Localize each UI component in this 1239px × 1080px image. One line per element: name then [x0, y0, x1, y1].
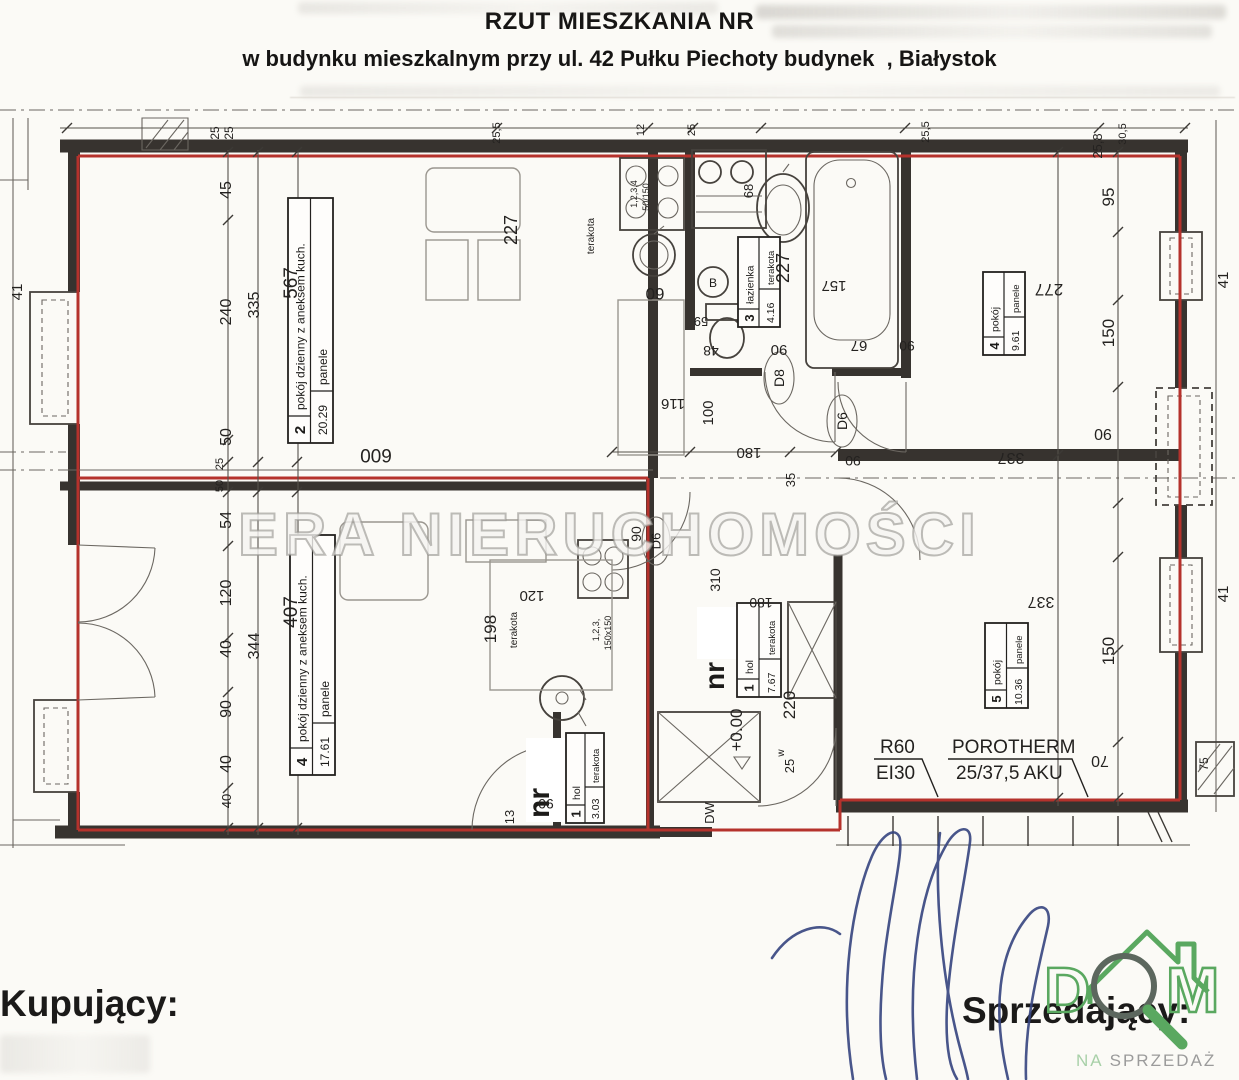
svg-text:terakota: terakota: [591, 748, 602, 783]
dimension-label: 30,5: [1117, 123, 1129, 144]
dimension-label: terakota: [509, 611, 520, 648]
scan-fold-line: [290, 97, 1235, 98]
dimension-label: 150: [1099, 637, 1118, 665]
dimension-label: 25,8: [1090, 133, 1105, 158]
dimension-label: 567: [281, 267, 302, 299]
svg-text:4.16: 4.16: [765, 302, 777, 323]
dimension-label: +0.00: [727, 708, 746, 751]
dimension-label: w: [776, 749, 787, 758]
room-table-living-2: 2 pokój dzienny z aneksem kuch. 20.29 pa…: [288, 198, 333, 443]
wall-annotation: R60 EI30 POROTHERM 25/37,5 AKU: [874, 737, 1088, 797]
svg-text:pokój: pokój: [992, 660, 1004, 685]
dimension-label: 100: [700, 400, 717, 425]
dimension-label: 240: [218, 299, 235, 326]
dimension-label: 41: [1215, 272, 1232, 289]
dimension-label: 1,2,3,4: [629, 180, 639, 208]
svg-text:łazienka: łazienka: [745, 265, 757, 304]
dimension-label: 157: [821, 277, 846, 294]
dimension-label: 25: [782, 759, 797, 773]
window-icon: [30, 292, 78, 424]
dimension-label: 25: [222, 126, 236, 140]
dimension-label: terakota: [586, 217, 597, 254]
svg-text:terakota: terakota: [767, 620, 778, 655]
dimension-label: 95: [1099, 188, 1118, 207]
scan-bleedthrough: [772, 25, 1212, 38]
dimension-label: 120: [519, 587, 544, 604]
svg-text:1: 1: [742, 684, 757, 691]
dimension-label: 310: [707, 568, 723, 592]
agency-watermark: ERA NIERUCHOMOŚCI: [238, 500, 981, 569]
dimension-label: 35: [783, 473, 798, 487]
dimension-label: 25,5: [920, 121, 932, 142]
bathtub-icon: [806, 152, 898, 368]
dimension-label: 116: [661, 395, 685, 412]
window-icon: [34, 700, 78, 792]
dimension-label: 50: [218, 428, 235, 446]
svg-text:1: 1: [569, 810, 584, 817]
dimension-label: 344: [246, 633, 263, 660]
dimension-label: 198: [481, 615, 500, 643]
dimension-label: 90: [538, 796, 554, 812]
dimension-label: 40: [218, 640, 235, 658]
dimension-label: 90: [899, 338, 915, 354]
dimension-label: 277: [1035, 280, 1063, 299]
dimension-label: 180: [749, 595, 773, 611]
door-label-d8: D8: [764, 352, 794, 404]
dimension-label: 150x150: [603, 616, 613, 651]
dimension-label: 40: [218, 755, 235, 773]
room-table-living-4: 4 pokój dzienny z aneksem kuch. 17.61 pa…: [290, 535, 335, 775]
bathroom-sink-icon: [757, 164, 809, 242]
svg-text:5: 5: [989, 695, 1004, 702]
svg-text:D8: D8: [771, 369, 787, 387]
dimension-label: 45: [218, 181, 235, 199]
dimension-label: 25,5: [491, 122, 503, 143]
dimension-label: 70: [1091, 752, 1109, 769]
seller-label: Sprzedający:: [962, 990, 1190, 1032]
dimension-label: 50/150: [641, 183, 651, 211]
dimension-label: 25: [214, 458, 226, 470]
dimension-label: 337: [1028, 593, 1055, 610]
dimension-label: 60: [646, 284, 665, 303]
scan-bleedthrough: [298, 2, 718, 14]
dimension-label: 59: [694, 314, 708, 329]
dimension-label: 120: [218, 580, 235, 607]
buyer-label: Kupujący:: [0, 983, 179, 1025]
svg-text:10.36: 10.36: [1013, 679, 1025, 705]
duct-shaft: [788, 602, 836, 698]
svg-text:4: 4: [294, 757, 311, 766]
svg-text:D6: D6: [834, 412, 850, 430]
dimension-label: 90: [218, 700, 235, 718]
svg-text:pokój: pokój: [990, 307, 1002, 332]
dimension-label: 90: [845, 453, 861, 469]
svg-text:panele: panele: [1011, 284, 1022, 313]
dimension-label: 180: [736, 444, 761, 461]
dimension-label: 54: [218, 511, 235, 529]
svg-text:17.61: 17.61: [318, 737, 332, 767]
dimension-label: 41: [1215, 586, 1232, 603]
dimension-label: 90: [1094, 425, 1112, 442]
blanked-number-patch: [697, 607, 739, 659]
svg-text:2: 2: [292, 426, 309, 434]
dimension-label: 227: [501, 215, 521, 245]
apartment-boundary-line: [78, 156, 1180, 830]
dimension-label: 67: [851, 337, 868, 354]
svg-text:panele: panele: [318, 681, 332, 717]
wall-material-top: POROTHERM: [952, 737, 1076, 758]
level-marker-icon: [734, 757, 750, 769]
kitchen-sink-icon: [540, 676, 586, 726]
dimension-label: 68: [741, 184, 756, 198]
balcony-door-icon: [1156, 388, 1212, 505]
dimension-label: 407: [281, 596, 302, 628]
fire-rating-bottom: EI30: [876, 763, 915, 784]
svg-text:20.29: 20.29: [316, 405, 330, 435]
dimension-label: 75: [1197, 757, 1211, 771]
dimension-label: 90: [771, 341, 788, 358]
dimension-label: 41: [9, 284, 26, 301]
dimension-label: 150: [1099, 319, 1118, 347]
svg-text:7.67: 7.67: [766, 672, 778, 693]
dimension-label: 227: [773, 253, 793, 283]
svg-text:4: 4: [987, 342, 1002, 350]
drawing-subtitle: w budynku mieszkalnym przy ul. 42 Pułku …: [0, 46, 1239, 72]
dimension-label: 337: [998, 449, 1025, 466]
svg-text:B: B: [709, 276, 717, 290]
dimension-label: 12: [635, 124, 647, 136]
scan-smudge: [0, 1035, 150, 1073]
scan-bleedthrough: [300, 86, 1220, 97]
dimension-label: 1,2,3,: [591, 619, 601, 642]
scan-bleedthrough: [756, 5, 1226, 19]
fire-rating-top: R60: [880, 737, 915, 758]
dimension-label: DW: [702, 801, 717, 823]
room-table-hall-left: 1 hol 3.03 terakota: [566, 733, 604, 823]
dimension-label: 13: [502, 810, 517, 824]
svg-text:9.61: 9.61: [1010, 330, 1022, 351]
dimension-label: 25: [208, 126, 222, 140]
svg-text:hol: hol: [571, 786, 583, 800]
svg-text:panele: panele: [316, 349, 330, 385]
dimension-label: 48: [703, 343, 719, 359]
dimension-label: 25: [686, 124, 698, 136]
washer-icon: B: [698, 267, 728, 297]
svg-text:panele: panele: [1014, 635, 1025, 664]
dimension-label: 335: [246, 292, 263, 319]
scanned-floorplan-page: { "header": { "title": "RZUT MIESZKANIA …: [0, 0, 1239, 1080]
svg-text:hol: hol: [744, 660, 756, 674]
room-table-room-4: 4 pokój 9.61 panele: [983, 272, 1025, 355]
dimension-label: 40: [219, 794, 234, 808]
door-label-d6: D6: [827, 395, 857, 447]
room-table-room-5: 5 pokój 10.36 panele: [985, 623, 1028, 708]
room-table-hall-right: 1 hol 7.67 terakota: [737, 603, 781, 697]
svg-text:3: 3: [742, 314, 757, 321]
dimension-label: 220: [780, 691, 799, 719]
wall-material-bottom: 25/37,5 AKU: [956, 763, 1063, 784]
svg-text:3.03: 3.03: [590, 798, 602, 819]
apartment-number-label: nr: [699, 662, 730, 690]
dimension-label: 600: [360, 444, 392, 465]
dimension-label: 50: [214, 480, 226, 492]
